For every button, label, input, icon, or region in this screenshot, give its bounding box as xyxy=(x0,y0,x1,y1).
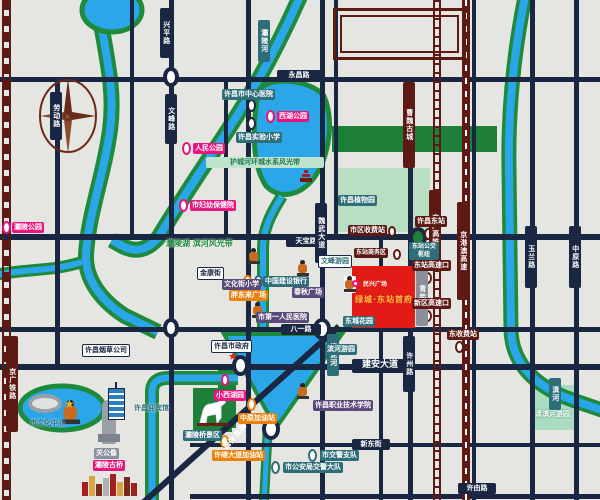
park-icon xyxy=(2,221,11,234)
poi-hotel-label: 许昌迎宾馆 xyxy=(132,403,171,414)
project-dot-icon xyxy=(352,280,359,287)
road-minor-1 xyxy=(130,0,134,235)
road-label-yongchang: 永昌路 xyxy=(277,70,321,81)
road-label-yulan: 玉兰路 xyxy=(525,226,537,288)
poi-icon xyxy=(308,449,317,462)
station-icon xyxy=(388,226,396,237)
park-label-little-west-lake: 小西湖园 xyxy=(214,390,246,401)
road-label-bayi: 八一路 xyxy=(281,324,321,335)
station-label-east-expwy-gate: 东站高速口 xyxy=(412,260,451,271)
park-label-baling: 灞陵公园 xyxy=(12,222,44,233)
road-label-qingnian: 青年路 xyxy=(416,268,428,326)
road-xindong xyxy=(190,443,600,447)
bronze-statue-icon xyxy=(297,383,309,400)
poi-chunqiu-square: 春秋广场 xyxy=(292,287,324,298)
park-label-botanic: 许昌植物园 xyxy=(338,195,377,206)
bus-stop-icon xyxy=(247,99,256,112)
poi-experimental-primary: 许昌实验小学 xyxy=(236,132,282,143)
station-label-xuchang-east: 许昌东站 xyxy=(415,216,447,227)
road-xuyou xyxy=(190,494,600,499)
poi-baling-bridge-scenic: 灞陵桥景区 xyxy=(183,430,222,441)
compass-rose-icon xyxy=(36,74,100,158)
road-label-jianan: 建安大道 xyxy=(352,359,408,373)
poi-gas-station-2: 许继大道加油站 xyxy=(212,450,265,461)
road-label-xindong: 新东街 xyxy=(352,439,390,450)
road-label-xingping: 兴平路 xyxy=(160,8,172,58)
station-label-east-business: 东站商务区 xyxy=(354,248,388,258)
poi-icon xyxy=(271,461,280,474)
pagoda-icon xyxy=(300,170,312,184)
landmark-star-icon: ★ xyxy=(64,398,75,410)
poi-guangong-statue-label: 关公像 xyxy=(94,448,119,459)
station-label-bus-hub: 东站公交枢纽 xyxy=(409,242,439,260)
road-label-laodong: 劳动路 xyxy=(50,92,62,140)
station-label-new-district-gate: 新区高速口 xyxy=(412,298,451,309)
poi-tobacco-company: 许昌烟草公司 xyxy=(82,344,130,357)
road-label-wenfeng: 文峰路 xyxy=(165,94,177,144)
poi-dongcheng-garden: 东城花园 xyxy=(343,316,375,327)
city-location-map: 永昌路 天宝路 八一路 建安大道 新东街 许由路 劳动路 兴平路 文峰路 魏武大… xyxy=(0,0,600,500)
station-icon xyxy=(393,249,401,260)
ancient-city-wall xyxy=(333,8,466,60)
project-sub-label: 民兴广场 xyxy=(363,282,387,288)
hotel-building-icon xyxy=(108,388,125,420)
poi-jinkang-street: 金康街 xyxy=(197,267,224,280)
poi-central-hospital: 许昌市中心医院 xyxy=(222,89,275,100)
poi-gas-station-1: 中原加油站 xyxy=(238,413,277,424)
poi-culture-center-label: 市文化中心 xyxy=(28,418,67,429)
road-label-xuzhou: 许州路 xyxy=(403,336,415,392)
park-label-binhe: 滨河游园 xyxy=(325,344,357,355)
rail-label-jinggangao-expwy: 京港澳高速 xyxy=(457,202,469,300)
poi-baling-old-bridge: 灞陵古桥 xyxy=(93,460,125,471)
rail-label-jingguang-railway: 京广铁路 xyxy=(6,336,18,432)
poi-traffic-brigade: 市公安局交警大队 xyxy=(283,462,343,473)
poi-ccb-bank: 中国建设银行 xyxy=(263,276,309,287)
poi-traffic-police: 市交警支队 xyxy=(320,450,359,461)
poi-first-hospital: 市第一人民医院 xyxy=(256,312,309,323)
old-town-buildings-icon xyxy=(82,470,137,496)
road-minor-2 xyxy=(224,77,228,235)
poi-icon xyxy=(179,199,188,212)
poi-vocational-college: 许昌职业技术学院 xyxy=(313,400,373,411)
station-label-east-toll: 东收费站 xyxy=(447,329,479,340)
poi-maternity-hospital: 市妇幼保健院 xyxy=(190,200,236,211)
government-star-icon: ★ xyxy=(228,351,238,362)
stadium-icon xyxy=(28,394,62,413)
roundabout xyxy=(163,67,179,87)
park-label-qingyi-riverside: 清潩河游园 xyxy=(533,409,572,420)
station-label-city-toll: 市区收费站 xyxy=(348,225,387,236)
project-name-label: 绿城·东站首府 xyxy=(353,294,415,306)
bronze-statue-icon xyxy=(248,248,260,265)
road-minor-5 xyxy=(472,0,476,500)
park-label-renmin: 人民公园 xyxy=(193,143,225,154)
wall-label-caowei-old-town: 曹魏古城 xyxy=(403,82,415,168)
poi-icon xyxy=(247,398,256,411)
poi-pangdonglai-plaza: 胖东来广场 xyxy=(229,290,268,301)
road-label-zhongyuan: 中原路 xyxy=(569,226,581,288)
poi-wenhua-primary: 文化街小学 xyxy=(222,279,261,290)
road-label-weiwu: 魏武大道 xyxy=(315,203,327,263)
river-label-baling: 灞陵河 xyxy=(258,20,270,62)
park-label-west-lake: 西湖公园 xyxy=(277,111,309,122)
park-label-baling-lake: 灞陵湖 滨河风光带 xyxy=(164,238,235,250)
park-icon xyxy=(266,110,275,123)
bronze-statue-icon xyxy=(297,260,309,277)
station-icon xyxy=(455,341,464,353)
bus-stop-icon xyxy=(247,117,256,130)
park-icon xyxy=(221,374,229,386)
park-icon xyxy=(182,142,191,155)
road-label-xuyou: 许由路 xyxy=(458,483,496,494)
park-label-wenfeng-garden: 文峰游园 xyxy=(318,255,352,268)
roundabout xyxy=(163,318,179,338)
park-label-moat-scenic-belt: 护城河环城水系风光带 xyxy=(206,157,324,168)
river-label-qingyi: 潩河 xyxy=(549,378,561,410)
